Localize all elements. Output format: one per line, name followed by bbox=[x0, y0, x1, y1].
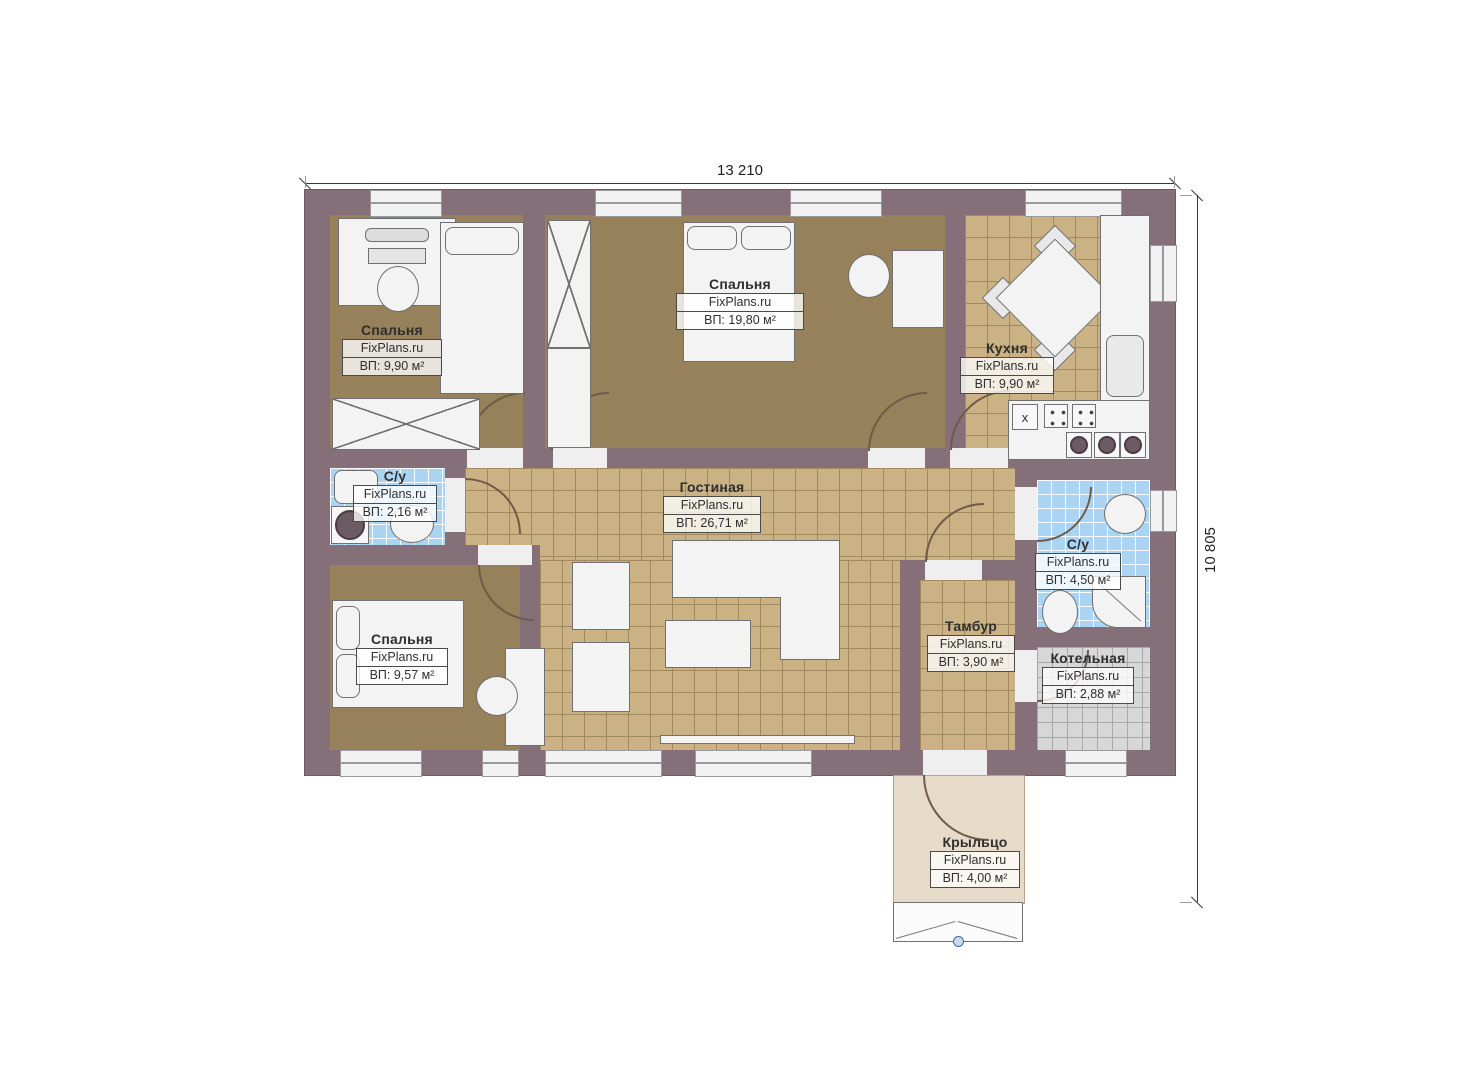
door-opening bbox=[1015, 487, 1037, 540]
room-label-bathroom-small: С/у FixPlans.ru ВП: 2,16 м² bbox=[353, 468, 437, 522]
door-opening bbox=[925, 560, 982, 580]
extension-line bbox=[1174, 176, 1175, 188]
tv-console bbox=[660, 735, 855, 744]
watermark: FixPlans.ru bbox=[927, 635, 1015, 654]
closet bbox=[547, 348, 591, 448]
door-opening bbox=[1015, 650, 1037, 702]
room-area: ВП: 9,57 м² bbox=[356, 666, 448, 685]
dimension-line-top bbox=[305, 183, 1175, 184]
room-label-tambour: Тамбур FixPlans.ru ВП: 3,90 м² bbox=[927, 618, 1015, 672]
window bbox=[1150, 490, 1177, 532]
door-opening bbox=[445, 478, 465, 532]
watermark: FixPlans.ru bbox=[342, 339, 442, 358]
watermark: FixPlans.ru bbox=[676, 293, 804, 312]
room-area: ВП: 2,16 м² bbox=[353, 503, 437, 522]
watermark: FixPlans.ru bbox=[930, 851, 1020, 870]
door-opening bbox=[467, 448, 523, 468]
window bbox=[370, 190, 442, 217]
armchair bbox=[572, 642, 630, 712]
sofa-chaise bbox=[780, 597, 840, 660]
room-name: Крыльцо bbox=[930, 834, 1020, 850]
window bbox=[1025, 190, 1122, 217]
room-name: Котельная bbox=[1042, 650, 1134, 666]
stove-burners-icon bbox=[1072, 404, 1096, 428]
dimension-height-label: 10 805 bbox=[1202, 505, 1219, 595]
tv bbox=[365, 228, 429, 242]
interior-wall bbox=[523, 215, 545, 448]
appliance bbox=[1066, 432, 1092, 458]
window bbox=[695, 750, 812, 777]
room-label-living-room: Гостиная FixPlans.ru ВП: 26,71 м² bbox=[663, 479, 761, 533]
room-area: ВП: 3,90 м² bbox=[927, 653, 1015, 672]
kitchen-sink bbox=[1106, 335, 1144, 397]
room-label-bathroom-large: С/у FixPlans.ru ВП: 4,50 м² bbox=[1035, 536, 1121, 590]
office-chair bbox=[476, 676, 518, 716]
pillow bbox=[687, 226, 737, 250]
room-label-bedroom-top-left: Спальня FixPlans.ru ВП: 9,90 м² bbox=[342, 322, 442, 376]
room-name: Спальня bbox=[356, 631, 448, 647]
watermark: FixPlans.ru bbox=[1035, 553, 1121, 572]
room-label-bedroom-bottom-left: Спальня FixPlans.ru ВП: 9,57 м² bbox=[356, 631, 448, 685]
window bbox=[1150, 245, 1177, 302]
door-opening bbox=[923, 750, 987, 775]
window bbox=[340, 750, 422, 777]
dimension-width-label: 13 210 bbox=[690, 162, 790, 179]
window bbox=[545, 750, 662, 777]
watermark: FixPlans.ru bbox=[356, 648, 448, 667]
room-name: Спальня bbox=[342, 322, 442, 338]
window bbox=[595, 190, 682, 217]
appliance bbox=[1120, 432, 1146, 458]
dimension-line-right bbox=[1197, 195, 1198, 902]
window bbox=[1065, 750, 1127, 777]
room-area: ВП: 2,88 м² bbox=[1042, 685, 1134, 704]
office-chair bbox=[377, 266, 419, 312]
door-opening bbox=[553, 448, 607, 468]
door-opening bbox=[950, 448, 1008, 468]
room-name: Спальня bbox=[676, 276, 804, 292]
room-label-boiler-room: Котельная FixPlans.ru ВП: 2,88 м² bbox=[1042, 650, 1134, 704]
watermark: FixPlans.ru bbox=[353, 485, 437, 504]
room-area: ВП: 4,50 м² bbox=[1035, 571, 1121, 590]
window bbox=[790, 190, 882, 217]
interior-wall bbox=[330, 448, 945, 468]
pillow bbox=[445, 227, 519, 255]
interior-wall bbox=[900, 560, 920, 750]
watermark: FixPlans.ru bbox=[960, 357, 1054, 376]
room-name: Тамбур bbox=[927, 618, 1015, 634]
appliance bbox=[1094, 432, 1120, 458]
room-label-bedroom-top-middle: Спальня FixPlans.ru ВП: 19,80 м² bbox=[676, 276, 804, 330]
room-area: ВП: 19,80 м² bbox=[676, 311, 804, 330]
wardrobe bbox=[332, 398, 480, 450]
room-name: Гостиная bbox=[663, 479, 761, 495]
entry-marker bbox=[953, 936, 964, 947]
wardrobe bbox=[547, 220, 591, 348]
tv-stand bbox=[368, 248, 426, 264]
watermark: FixPlans.ru bbox=[1042, 667, 1134, 686]
window bbox=[482, 750, 519, 777]
sink bbox=[1104, 494, 1146, 534]
room-name: С/у bbox=[1035, 536, 1121, 552]
room-label-porch: Крыльцо FixPlans.ru ВП: 4,00 м² bbox=[930, 834, 1020, 888]
room-area: ВП: 9,90 м² bbox=[960, 375, 1054, 394]
pillow bbox=[741, 226, 791, 250]
room-label-kitchen: Кухня FixPlans.ru ВП: 9,90 м² bbox=[960, 340, 1054, 394]
coffee-table bbox=[665, 620, 751, 668]
extension-line bbox=[1180, 902, 1192, 903]
room-area: ВП: 4,00 м² bbox=[930, 869, 1020, 888]
door-opening bbox=[868, 448, 925, 468]
extension-line bbox=[1180, 195, 1192, 196]
room-area: ВП: 9,90 м² bbox=[342, 357, 442, 376]
armchair bbox=[572, 562, 630, 630]
stove-mark: x bbox=[1012, 404, 1038, 430]
extension-line bbox=[305, 176, 306, 188]
watermark: FixPlans.ru bbox=[663, 496, 761, 515]
stove-burners-icon bbox=[1044, 404, 1068, 428]
office-chair bbox=[848, 254, 890, 298]
room-name: Кухня bbox=[960, 340, 1054, 356]
floor-plan-canvas: 13 210 10 805 bbox=[0, 0, 1474, 1080]
desk bbox=[892, 250, 944, 328]
room-name: С/у bbox=[353, 468, 437, 484]
toilet bbox=[1042, 590, 1078, 634]
sofa bbox=[672, 540, 840, 598]
door-opening bbox=[478, 545, 532, 565]
room-area: ВП: 26,71 м² bbox=[663, 514, 761, 533]
